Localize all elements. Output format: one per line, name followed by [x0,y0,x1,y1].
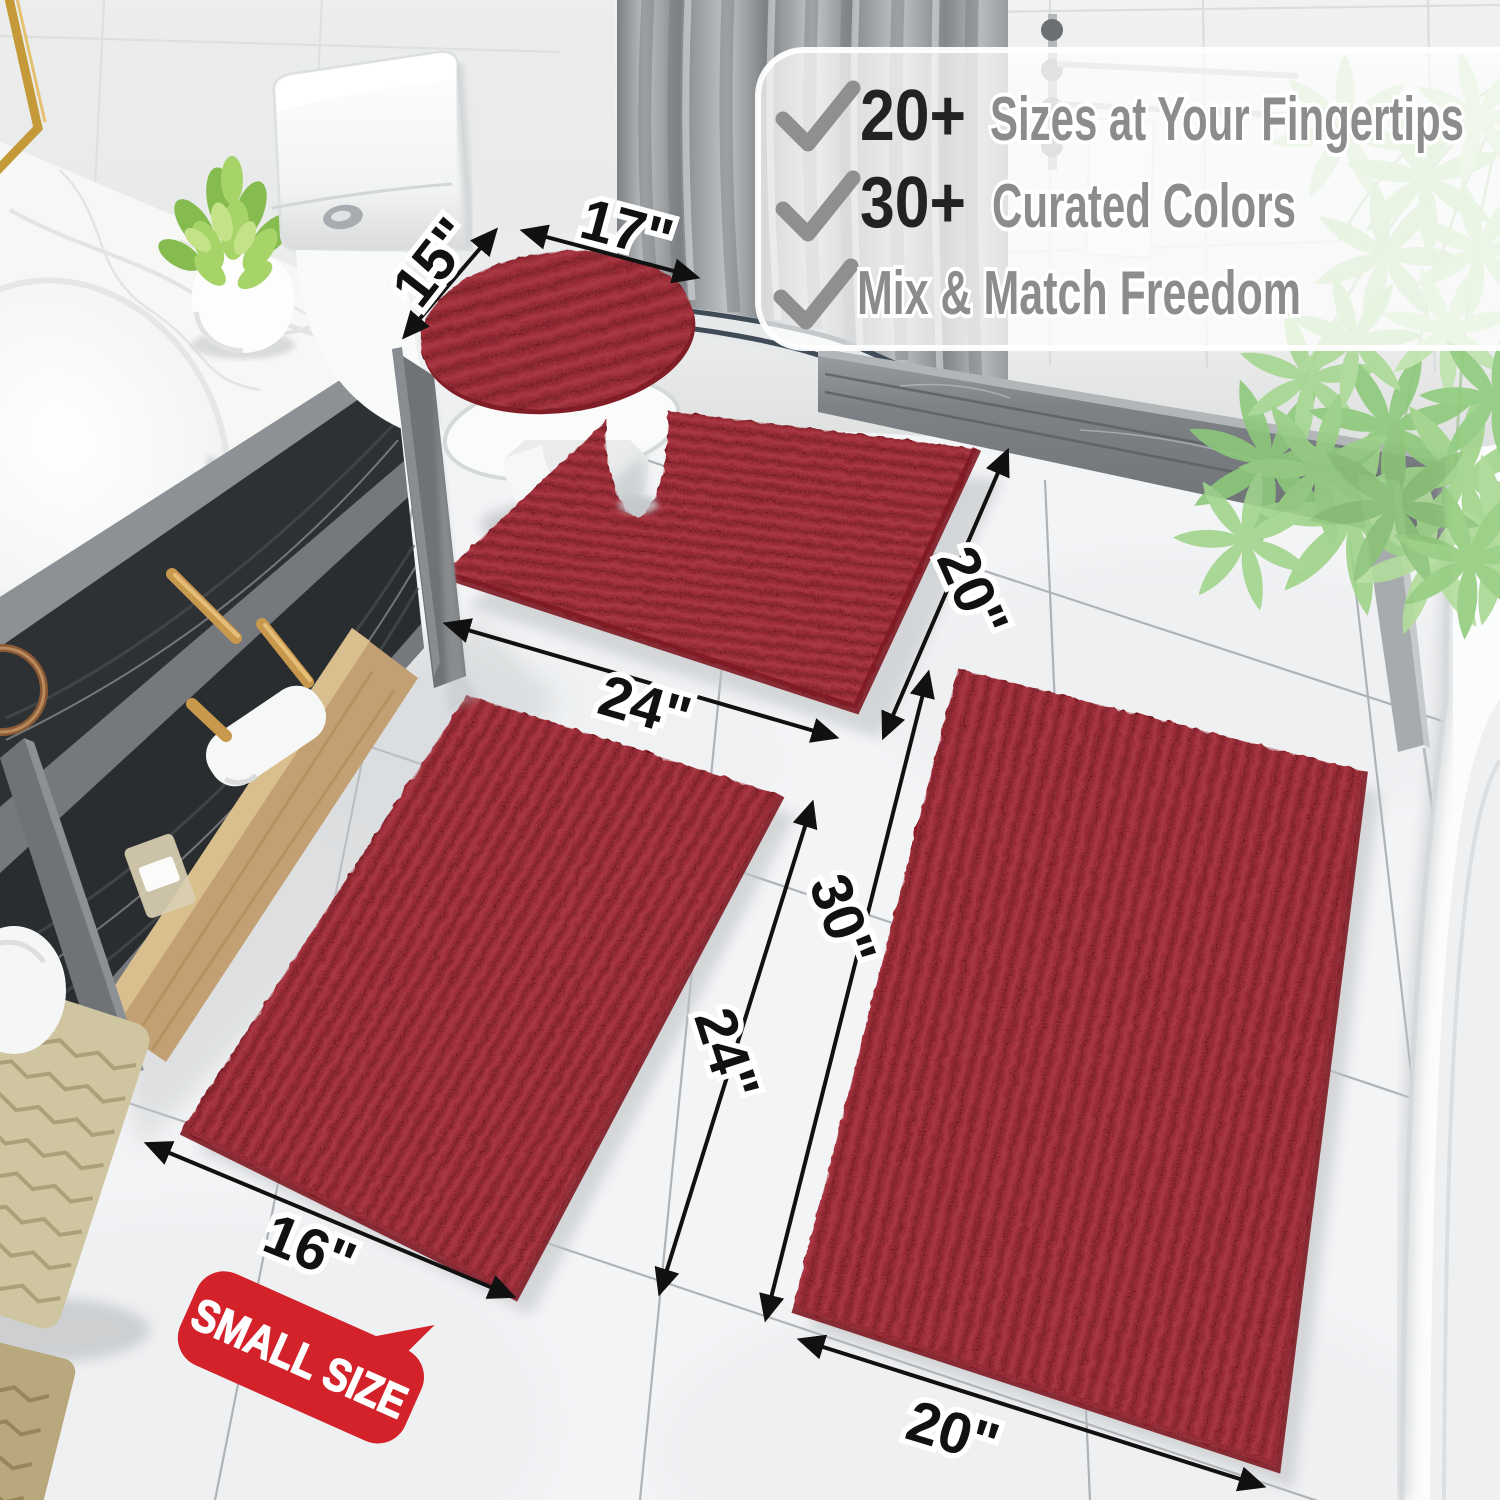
svg-text:30+: 30+ [860,163,966,243]
svg-text:20+: 20+ [860,76,966,156]
svg-text:Curated Colors: Curated Colors [992,172,1296,241]
svg-text:Mix & Match Freedom: Mix & Match Freedom [857,259,1301,328]
svg-text:Sizes at Your Fingertips: Sizes at Your Fingertips [990,85,1464,154]
